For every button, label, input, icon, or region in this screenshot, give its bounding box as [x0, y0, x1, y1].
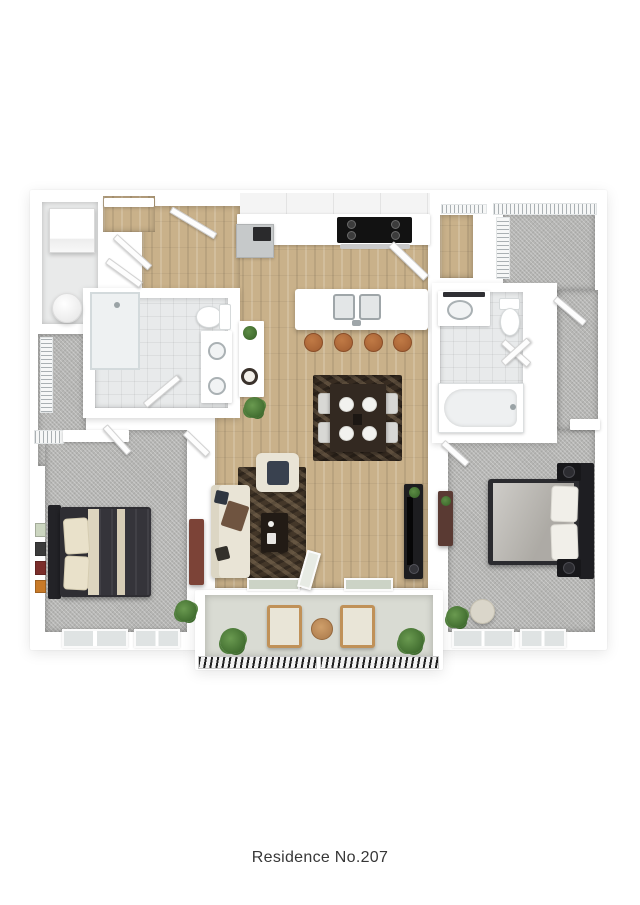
vanity-basin-1 — [208, 342, 226, 360]
coffee-table-tray — [267, 533, 276, 544]
dresser-plant — [441, 496, 451, 506]
vanity-2-basin — [447, 300, 473, 320]
console-round-mirror — [241, 368, 258, 385]
wall-art — [35, 523, 46, 537]
balcony-railing — [198, 656, 317, 669]
burner — [391, 231, 400, 240]
balcony-side-table — [311, 618, 333, 640]
entry-floor-plant — [244, 397, 265, 418]
tv-screen — [407, 497, 413, 565]
hall-closet-shelving — [40, 337, 53, 413]
balcony-plant — [220, 628, 246, 654]
bed-2-pillow — [550, 486, 578, 523]
pouf — [470, 599, 495, 624]
bedroom-1-closet-shelving — [34, 430, 64, 444]
small-closet-wood-floor — [440, 215, 473, 278]
bed-1-sheet-band — [117, 509, 125, 595]
nightstand-lamp — [563, 562, 575, 574]
bedroom-2-plant — [446, 606, 468, 628]
toilet-2-bowl — [500, 308, 520, 336]
vanity-basin-2 — [208, 377, 226, 395]
counter-appliance — [253, 227, 271, 241]
balcony-chair — [340, 605, 375, 648]
bed-1-pillow — [63, 555, 90, 590]
shower-head — [114, 302, 120, 308]
walkin-shelving-top — [493, 203, 597, 215]
bar-stool — [393, 333, 412, 352]
bedroom-2-window — [452, 629, 514, 648]
residence-caption: Residence No.207 — [0, 849, 640, 867]
bar-stool — [364, 333, 383, 352]
washer-dryer — [49, 208, 95, 253]
table-centerpiece — [353, 414, 362, 425]
upper-cabinets — [240, 193, 430, 215]
bar-stool — [334, 333, 353, 352]
small-closet-shelving — [441, 204, 487, 214]
bathtub-faucet — [510, 404, 516, 410]
place-setting — [362, 426, 377, 441]
water-heater — [52, 293, 82, 323]
bedroom-1-window — [62, 629, 128, 648]
entry-closet-shelf — [104, 198, 154, 207]
balcony-chair — [267, 605, 302, 648]
bedroom-1-window — [134, 629, 180, 648]
place-setting — [339, 397, 354, 412]
sliding-door-glass — [247, 578, 300, 591]
bed-1-sheet-band — [88, 509, 99, 595]
walk-in-closet-carpet — [503, 212, 595, 290]
toilet-1-tank — [219, 304, 231, 330]
vanity-2-faucet-bar — [443, 292, 485, 297]
armchair-cushion — [267, 461, 289, 485]
place-setting — [362, 397, 377, 412]
speaker — [409, 564, 419, 574]
console-plant — [409, 487, 420, 498]
bed-2-headboard — [579, 463, 594, 579]
floorplan-image: Residence No.207 — [0, 0, 640, 905]
burner — [347, 220, 356, 229]
balcony-plant — [398, 628, 424, 654]
bathtub-basin — [444, 389, 517, 427]
wall-art — [35, 561, 46, 575]
closet-corridor-carpet — [557, 290, 598, 430]
bed-1-pillow — [63, 517, 90, 555]
place-setting — [339, 426, 354, 441]
island-sink-1 — [333, 294, 355, 320]
burner — [391, 220, 400, 229]
wall-art — [35, 542, 46, 556]
walkin-shelving-left — [496, 217, 510, 279]
bar-stool — [304, 333, 323, 352]
bedroom-1-plant — [175, 600, 197, 622]
bedroom-2-window — [520, 629, 566, 648]
bed-2-pillow — [550, 524, 578, 561]
burner — [347, 231, 356, 240]
coffee-table-decor — [268, 521, 274, 527]
corridor-ledge — [570, 419, 600, 430]
island-sink-2 — [359, 294, 381, 320]
nightstand-lamp — [563, 466, 575, 478]
island-faucet — [352, 320, 361, 326]
bed-1-duvet — [99, 509, 151, 595]
wall-art — [35, 580, 46, 593]
sliding-door-glass — [344, 578, 393, 591]
accent-cabinet — [189, 519, 204, 585]
console-plant — [243, 326, 257, 340]
balcony-railing — [320, 656, 439, 669]
